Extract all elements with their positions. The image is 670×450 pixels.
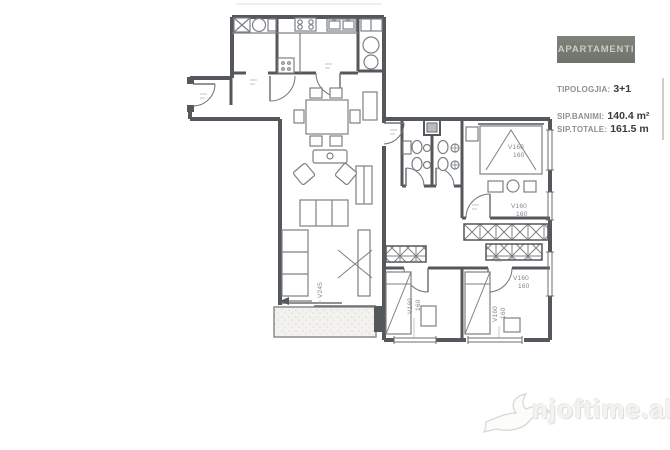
svg-text:160: 160 bbox=[513, 152, 525, 159]
laundry-counter-icons bbox=[232, 18, 277, 33]
label-mid-window: V160 160 bbox=[511, 203, 528, 218]
bedroom3-furniture bbox=[465, 272, 520, 334]
direction-arrow-icon bbox=[280, 297, 312, 305]
laundry-door bbox=[270, 76, 295, 101]
svg-text:V160: V160 bbox=[513, 275, 529, 282]
bedroom3-door bbox=[488, 268, 512, 292]
svg-text:160: 160 bbox=[415, 299, 422, 311]
entry-door bbox=[193, 84, 215, 106]
door-swings bbox=[193, 73, 512, 292]
tv-unit-icon bbox=[358, 230, 370, 296]
living-area-label: SIP.BANIMI: bbox=[557, 112, 604, 121]
watermark-text: njoftime.al bbox=[532, 394, 670, 425]
bath-b-door bbox=[436, 168, 454, 186]
sofa-icon bbox=[300, 200, 348, 226]
total-area-label: SIP.TOTALE: bbox=[557, 125, 607, 134]
living-area-value: 140.4 m² bbox=[607, 110, 649, 122]
apartment-title-badge: APARTAMENTI bbox=[557, 36, 635, 63]
svg-text:160: 160 bbox=[500, 307, 507, 319]
svg-text:V160: V160 bbox=[511, 203, 527, 210]
living-room-furniture bbox=[282, 150, 372, 296]
svg-text:V160: V160 bbox=[492, 306, 499, 322]
living-area-row: SIP.BANIMI: 140.4 m² bbox=[557, 110, 669, 122]
typology-row: TIPOLOGJIA: 3+1 bbox=[557, 83, 669, 95]
watermark-logo: njoftime.al bbox=[480, 388, 670, 442]
bath-a-door bbox=[406, 168, 424, 186]
total-area-row: SIP.TOTALE: 161.5 m bbox=[557, 123, 669, 135]
total-area-value: 161.5 m bbox=[610, 123, 649, 135]
label-living-window: V245 bbox=[317, 282, 324, 298]
label-bed2-window: V160 160 bbox=[407, 298, 422, 314]
dining-table-icon bbox=[294, 88, 360, 146]
sliding-door bbox=[280, 303, 376, 306]
wc-top-fixtures bbox=[363, 37, 379, 69]
svg-text:160: 160 bbox=[516, 211, 528, 218]
svg-text:V160: V160 bbox=[508, 144, 524, 151]
svg-text:V245: V245 bbox=[317, 282, 324, 298]
label-bed3-window: V160 160 bbox=[492, 306, 507, 322]
dining-cabinet-icon bbox=[363, 92, 377, 120]
master-bedroom-door bbox=[466, 194, 490, 218]
label-low-window: V160 160 bbox=[513, 275, 530, 290]
balcony bbox=[274, 297, 384, 337]
typology-value: 3+1 bbox=[613, 83, 631, 95]
listing-floorplan-page: V160 160 V160 160 V160 160 V160 160 V160… bbox=[0, 0, 670, 450]
master-bed-icon bbox=[466, 124, 544, 192]
typology-label: TIPOLOGJIA: bbox=[557, 85, 610, 94]
wardrobe-closets bbox=[386, 224, 548, 262]
listing-info-panel: APARTAMENTI TIPOLOGJIA: 3+1 SIP.BANIMI: … bbox=[557, 36, 669, 135]
svg-text:V160: V160 bbox=[407, 298, 414, 314]
svg-text:160: 160 bbox=[518, 283, 530, 290]
entry-door-jambs bbox=[187, 77, 194, 112]
